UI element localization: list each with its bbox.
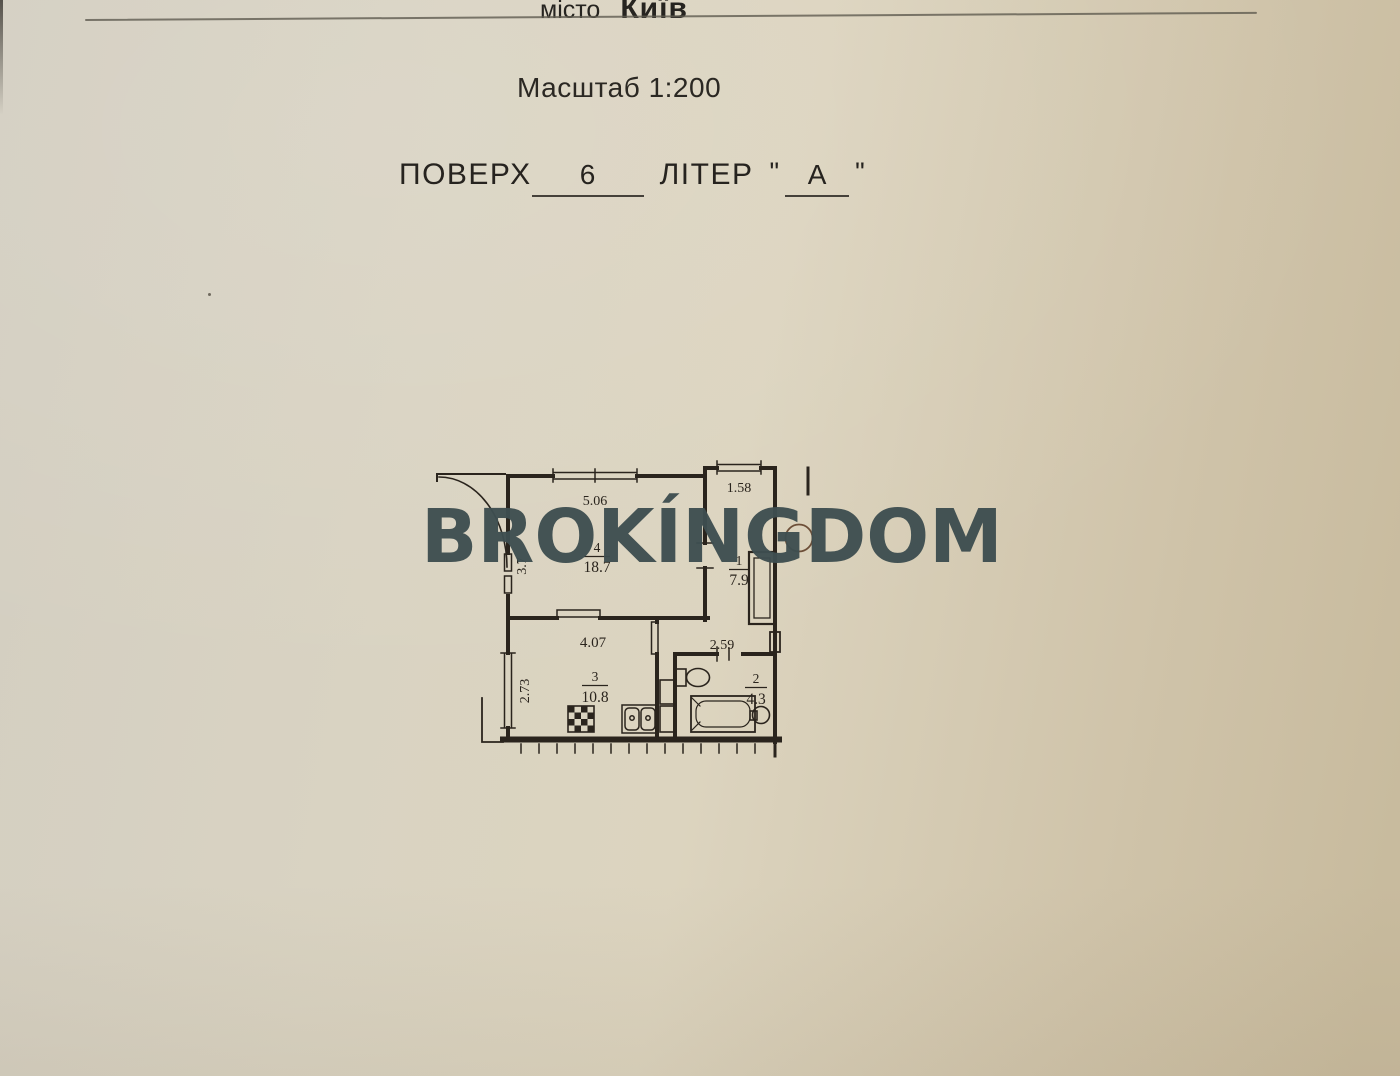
room-label-bathroom: 2 4.3 — [745, 671, 767, 708]
quote-open: " — [769, 157, 779, 188]
adjacent-balcony-edge — [482, 698, 503, 742]
document-header: місто Київ — [540, 0, 688, 26]
room-number-bathroom: 2 — [753, 671, 760, 686]
toilet-symbol — [676, 669, 710, 687]
floor-label: ПОВЕРХ — [399, 158, 532, 192]
room-number-kitchen: 3 — [592, 669, 599, 684]
stove-symbol — [568, 706, 594, 732]
letter-label: ЛІТЕР — [660, 158, 754, 192]
door-leaf-kitchen — [652, 622, 659, 654]
paper-speck — [208, 293, 211, 296]
window-kitchen-left — [501, 653, 515, 728]
washbasin-symbol — [750, 707, 770, 724]
page-edge-shadow — [0, 0, 3, 115]
quote-close: " — [855, 157, 865, 188]
scanned-document-page: місто Київ Масштаб 1:200 ПОВЕРХ 6 ЛІТЕР … — [0, 0, 1400, 1076]
city-label: місто — [540, 0, 600, 25]
city-value: Київ — [620, 0, 688, 26]
room-area-bathroom: 4.3 — [746, 691, 766, 708]
dim-bathroom-width: 2.59 — [710, 638, 735, 653]
scale-text: Масштаб 1:200 — [517, 72, 721, 104]
dim-kitchen-depth: 2.73 — [518, 679, 533, 704]
watermark-text: BROKÍNGDOM — [421, 494, 1003, 580]
floor-number-field: 6 — [532, 160, 644, 197]
duct-column-lower — [660, 706, 674, 732]
bottom-hatch-ticks — [521, 744, 755, 753]
kitchen-sink-symbol — [622, 705, 658, 733]
door-leaf-living-kitchen — [557, 610, 600, 617]
dim-kitchen-width: 4.07 — [580, 635, 607, 651]
window-living-top — [553, 469, 637, 482]
window-hall-top — [717, 461, 761, 474]
floor-letter-row: ПОВЕРХ 6 ЛІТЕР " А " — [399, 158, 865, 197]
room-area-kitchen: 10.8 — [581, 689, 608, 706]
duct-column-upper — [660, 680, 674, 704]
room-label-kitchen: 3 10.8 — [581, 669, 608, 706]
letter-field: А — [785, 160, 849, 197]
